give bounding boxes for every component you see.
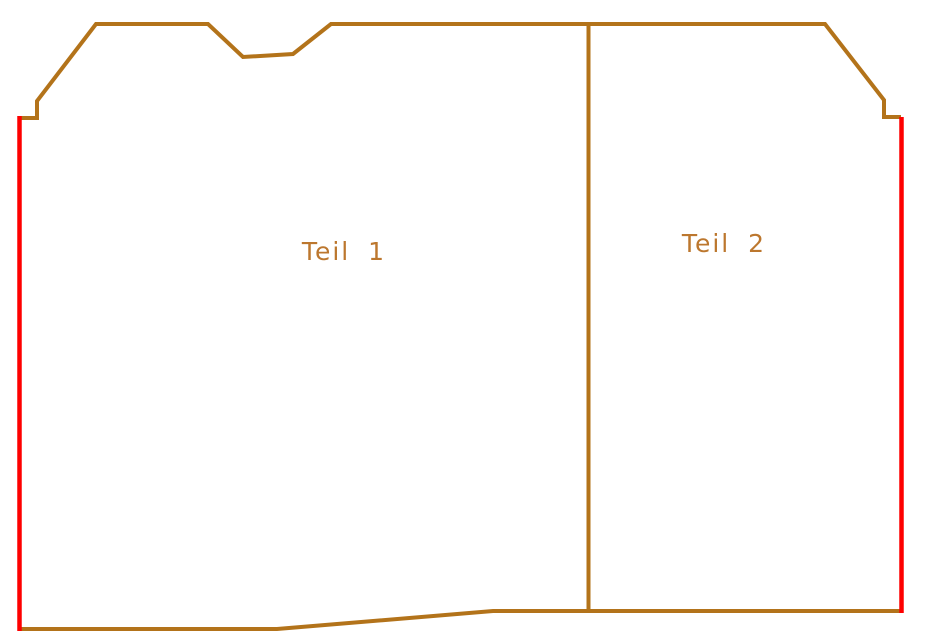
part-1-label: Teil 1 xyxy=(301,237,386,266)
pattern-drawing-canvas: Teil 1 Teil 2 xyxy=(0,0,945,644)
pattern-drawing: Teil 1 Teil 2 xyxy=(0,0,945,644)
pattern-outline-bottom xyxy=(19,611,901,629)
pattern-outline-top xyxy=(19,24,901,118)
part-2-label: Teil 2 xyxy=(681,229,766,258)
